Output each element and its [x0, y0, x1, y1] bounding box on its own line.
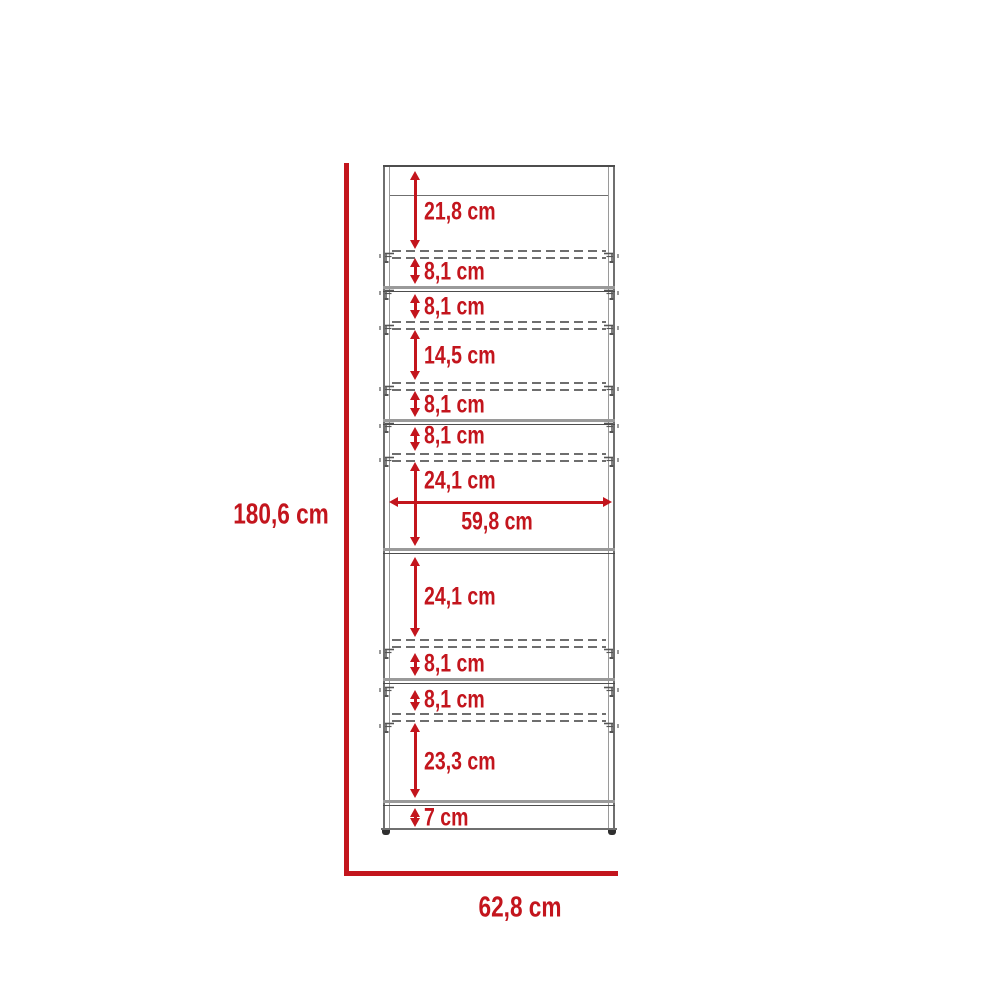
shelf-pin-outer-tick	[379, 291, 381, 295]
shelf-line-thin	[383, 424, 615, 425]
adjustable-shelf-dashed-line	[392, 646, 606, 648]
overall-width-line	[344, 871, 618, 876]
vertical-dimension-label: 7 cm	[424, 806, 468, 831]
arrowhead-down-icon	[410, 818, 420, 827]
cabinet-left-foot	[382, 830, 390, 835]
arrowhead-down-icon	[410, 275, 420, 284]
shelf-pin-outer-tick	[379, 724, 381, 728]
vertical-dimension-label: 8,1 cm	[424, 688, 485, 713]
arrowhead-up-icon	[410, 391, 420, 400]
adjustable-shelf-dashed-line	[392, 639, 606, 641]
arrowhead-up-icon	[410, 690, 420, 699]
shelf-line-thin	[383, 805, 615, 806]
vertical-dimension-label: 8,1 cm	[424, 424, 485, 449]
adjustable-shelf-dashed-line	[392, 250, 606, 252]
shelf-pin-icon	[384, 648, 396, 660]
shelf-pin-outer-tick	[379, 326, 381, 330]
arrowhead-down-icon	[410, 442, 420, 451]
arrowhead-down-icon	[410, 702, 420, 711]
adjustable-shelf-dashed-line	[392, 321, 606, 323]
shelf-pin-icon	[602, 252, 614, 264]
overall-width-label: 62,8 cm	[478, 894, 561, 923]
arrowhead-down-icon	[410, 667, 420, 676]
arrowhead-left-icon	[389, 497, 398, 507]
shelf-pin-outer-tick	[617, 458, 619, 462]
vertical-dimension-label: 23,3 cm	[424, 750, 496, 775]
arrowhead-down-icon	[410, 628, 420, 637]
arrowhead-up-icon	[410, 723, 420, 732]
shelf-pin-outer-tick	[379, 688, 381, 692]
shelf-line-thin	[383, 553, 615, 554]
vertical-dimension-label: 8,1 cm	[424, 652, 485, 677]
shelf-line-thick	[383, 800, 615, 803]
shelf-line-thick	[383, 286, 615, 289]
shelf-pin-icon	[602, 648, 614, 660]
adjustable-shelf-dashed-line	[392, 720, 606, 722]
shelf-pin-outer-tick	[617, 424, 619, 428]
vertical-dimension-arrow-shaft	[414, 468, 417, 540]
arrowhead-down-icon	[410, 537, 420, 546]
shelf-pin-icon	[602, 686, 614, 698]
overall-height-label: 180,6 cm	[233, 501, 329, 530]
vertical-dimension-label: 8,1 cm	[424, 260, 485, 285]
arrowhead-down-icon	[410, 789, 420, 798]
arrowhead-down-icon	[410, 240, 420, 249]
shelf-pin-outer-tick	[617, 387, 619, 391]
shelf-pin-icon	[384, 686, 396, 698]
shelf-pin-outer-tick	[379, 458, 381, 462]
vertical-dimension-arrow-shaft	[414, 729, 417, 792]
shelf-pin-outer-tick	[379, 254, 381, 258]
adjustable-shelf-dashed-line	[392, 453, 606, 455]
shelf-line-thick	[383, 678, 615, 681]
shelf-pin-outer-tick	[617, 688, 619, 692]
adjustable-shelf-dashed-line	[392, 328, 606, 330]
shelf-line-thick	[383, 419, 615, 422]
inner-width-arrow-shaft	[395, 501, 606, 504]
cabinet-top-band-line	[390, 195, 608, 196]
arrowhead-down-icon	[410, 371, 420, 380]
vertical-dimension-label: 24,1 cm	[424, 585, 496, 610]
shelf-pin-outer-tick	[617, 650, 619, 654]
shelf-pin-icon	[384, 722, 396, 734]
shelf-pin-outer-tick	[379, 387, 381, 391]
vertical-dimension-label: 24,1 cm	[424, 469, 496, 494]
cabinet-top-edge	[383, 165, 615, 167]
shelf-line-thin	[383, 683, 615, 684]
adjustable-shelf-dashed-line	[392, 382, 606, 384]
overall-height-line	[344, 163, 349, 876]
vertical-dimension-label: 21,8 cm	[424, 200, 496, 225]
shelf-pin-icon	[384, 252, 396, 264]
adjustable-shelf-dashed-line	[392, 460, 606, 462]
shelf-pin-icon	[602, 324, 614, 336]
shelf-line-thin	[383, 291, 615, 292]
arrowhead-up-icon	[410, 557, 420, 566]
furniture-dimension-diagram: 21,8 cm8,1 cm8,1 cm14,5 cm8,1 cm8,1 cm24…	[0, 0, 1000, 1000]
arrowhead-right-icon	[603, 497, 612, 507]
vertical-dimension-label: 8,1 cm	[424, 393, 485, 418]
arrowhead-up-icon	[410, 294, 420, 303]
shelf-pin-icon	[384, 385, 396, 397]
arrowhead-up-icon	[410, 653, 420, 662]
shelf-pin-icon	[384, 289, 396, 301]
arrowhead-up-icon	[410, 808, 420, 817]
shelf-pin-icon	[384, 324, 396, 336]
arrowhead-down-icon	[410, 408, 420, 417]
vertical-dimension-label: 8,1 cm	[424, 295, 485, 320]
shelf-pin-icon	[602, 456, 614, 468]
shelf-pin-outer-tick	[379, 650, 381, 654]
shelf-pin-icon	[602, 385, 614, 397]
arrowhead-up-icon	[410, 427, 420, 436]
cabinet-right-foot	[608, 830, 616, 835]
shelf-pin-icon	[602, 422, 614, 434]
shelf-pin-outer-tick	[617, 724, 619, 728]
arrowhead-up-icon	[410, 258, 420, 267]
shelf-pin-icon	[384, 422, 396, 434]
arrowhead-up-icon	[410, 171, 420, 180]
vertical-dimension-arrow-shaft	[414, 336, 417, 374]
shelf-pin-outer-tick	[617, 291, 619, 295]
arrowhead-up-icon	[410, 330, 420, 339]
inner-width-label: 59,8 cm	[461, 510, 533, 535]
arrowhead-down-icon	[410, 310, 420, 319]
shelf-line-thick	[383, 548, 615, 551]
shelf-pin-outer-tick	[379, 424, 381, 428]
vertical-dimension-arrow-shaft	[414, 563, 417, 631]
shelf-pin-outer-tick	[617, 254, 619, 258]
shelf-pin-icon	[384, 456, 396, 468]
vertical-dimension-label: 14,5 cm	[424, 344, 496, 369]
shelf-pin-outer-tick	[617, 326, 619, 330]
vertical-dimension-arrow-shaft	[414, 177, 417, 243]
cabinet-bottom-edge	[381, 828, 617, 830]
shelf-pin-icon	[602, 722, 614, 734]
arrowhead-up-icon	[410, 462, 420, 471]
shelf-pin-icon	[602, 289, 614, 301]
